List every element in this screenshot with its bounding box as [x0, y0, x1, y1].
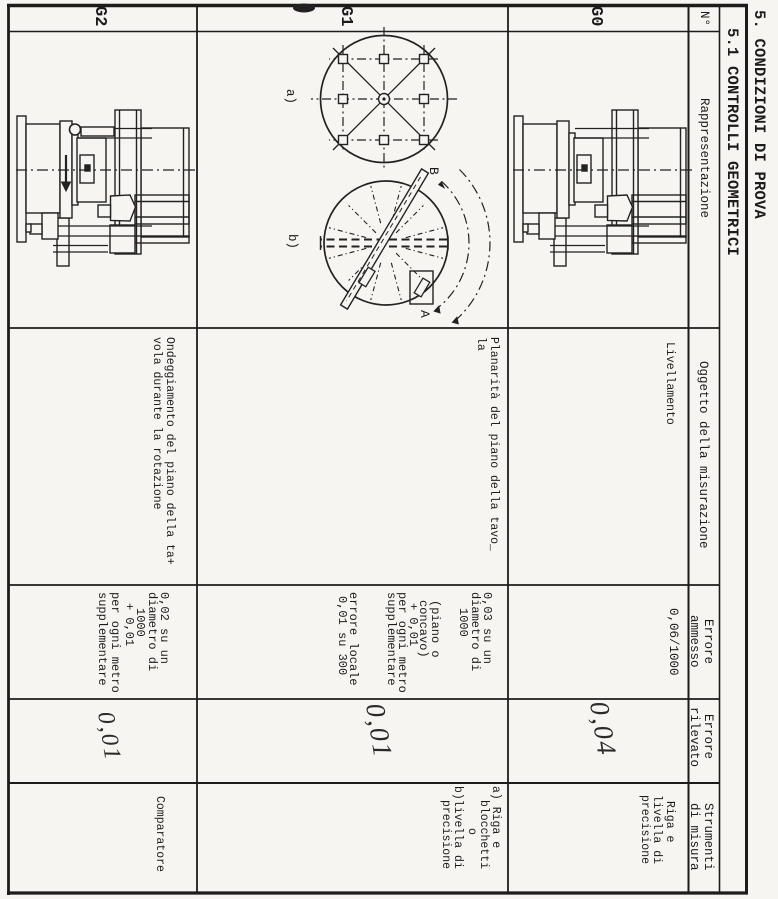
- svg-text:A: A: [417, 310, 432, 318]
- svg-text:blocchetti: blocchetti: [477, 800, 490, 869]
- svg-text:+ 0,01: + 0,01: [122, 603, 136, 646]
- svg-text:Ondeggiamento del piano della: Ondeggiamento del piano della ta+: [163, 337, 176, 565]
- svg-text:di misura: di misura: [687, 803, 701, 871]
- svg-text:0,06/1000: 0,06/1000: [666, 608, 680, 676]
- svg-text:diametro di: diametro di: [145, 592, 159, 671]
- svg-text:Oggetto della misurazione: Oggetto della misurazione: [696, 361, 710, 549]
- svg-text:a) Riga e: a) Riga e: [489, 786, 502, 848]
- svg-text:B: B: [426, 167, 441, 175]
- svg-text:G1: G1: [336, 6, 355, 26]
- svg-text:N°: N°: [697, 11, 711, 26]
- svg-text:Planarità del piano della tavo: Planarità del piano della tavo_: [487, 337, 500, 551]
- svg-text:0,04: 0,04: [584, 699, 622, 758]
- svg-text:livella di: livella di: [650, 795, 663, 864]
- svg-text:b): b): [285, 234, 299, 249]
- svg-text:b)livella di: b)livella di: [451, 786, 464, 869]
- svg-text:precisione: precisione: [439, 800, 452, 869]
- svg-text:ammesso: ammesso: [687, 615, 701, 668]
- svg-text:0,01: 0,01: [360, 701, 398, 760]
- svg-text:1000: 1000: [456, 608, 470, 637]
- svg-text:vola durante la rotazione: vola durante la rotazione: [150, 337, 163, 510]
- svg-text:G2: G2: [90, 6, 109, 26]
- svg-text:5. CONDIZIONI DI PROVA: 5. CONDIZIONI DI PROVA: [750, 10, 768, 220]
- svg-text:o: o: [465, 828, 478, 835]
- svg-text:precisione: precisione: [638, 795, 651, 864]
- svg-text:Rappresentazione: Rappresentazione: [697, 98, 711, 218]
- svg-text:per ogni metro: per ogni metro: [108, 592, 122, 693]
- svg-text:a): a): [283, 89, 297, 104]
- svg-text:(piano o: (piano o: [428, 600, 442, 658]
- svg-text:Strumenti: Strumenti: [701, 803, 715, 871]
- svg-text:Comparatore: Comparatore: [153, 796, 166, 872]
- svg-text:la: la: [474, 337, 487, 351]
- svg-text:Riga e: Riga e: [663, 801, 676, 843]
- svg-text:5.1 CONTROLLI GEOMETRICI: 5.1 CONTROLLI GEOMETRICI: [723, 28, 741, 256]
- svg-text:Livellamento: Livellamento: [663, 342, 676, 425]
- svg-text:Errore: Errore: [701, 714, 715, 759]
- svg-text:0,02 su un: 0,02 su un: [157, 592, 171, 664]
- svg-text:supplementare: supplementare: [384, 592, 398, 686]
- svg-text:supplementare: supplementare: [95, 592, 109, 686]
- svg-text:diametro di: diametro di: [468, 592, 482, 671]
- svg-text:0,01 su 300: 0,01 su 300: [335, 596, 349, 675]
- svg-text:0,03 su un: 0,03 su un: [480, 592, 494, 664]
- svg-text:0,01: 0,01: [92, 710, 126, 763]
- svg-text:G0: G0: [586, 6, 605, 26]
- svg-text:rilevato: rilevato: [687, 707, 701, 767]
- svg-text:Errore: Errore: [701, 619, 715, 664]
